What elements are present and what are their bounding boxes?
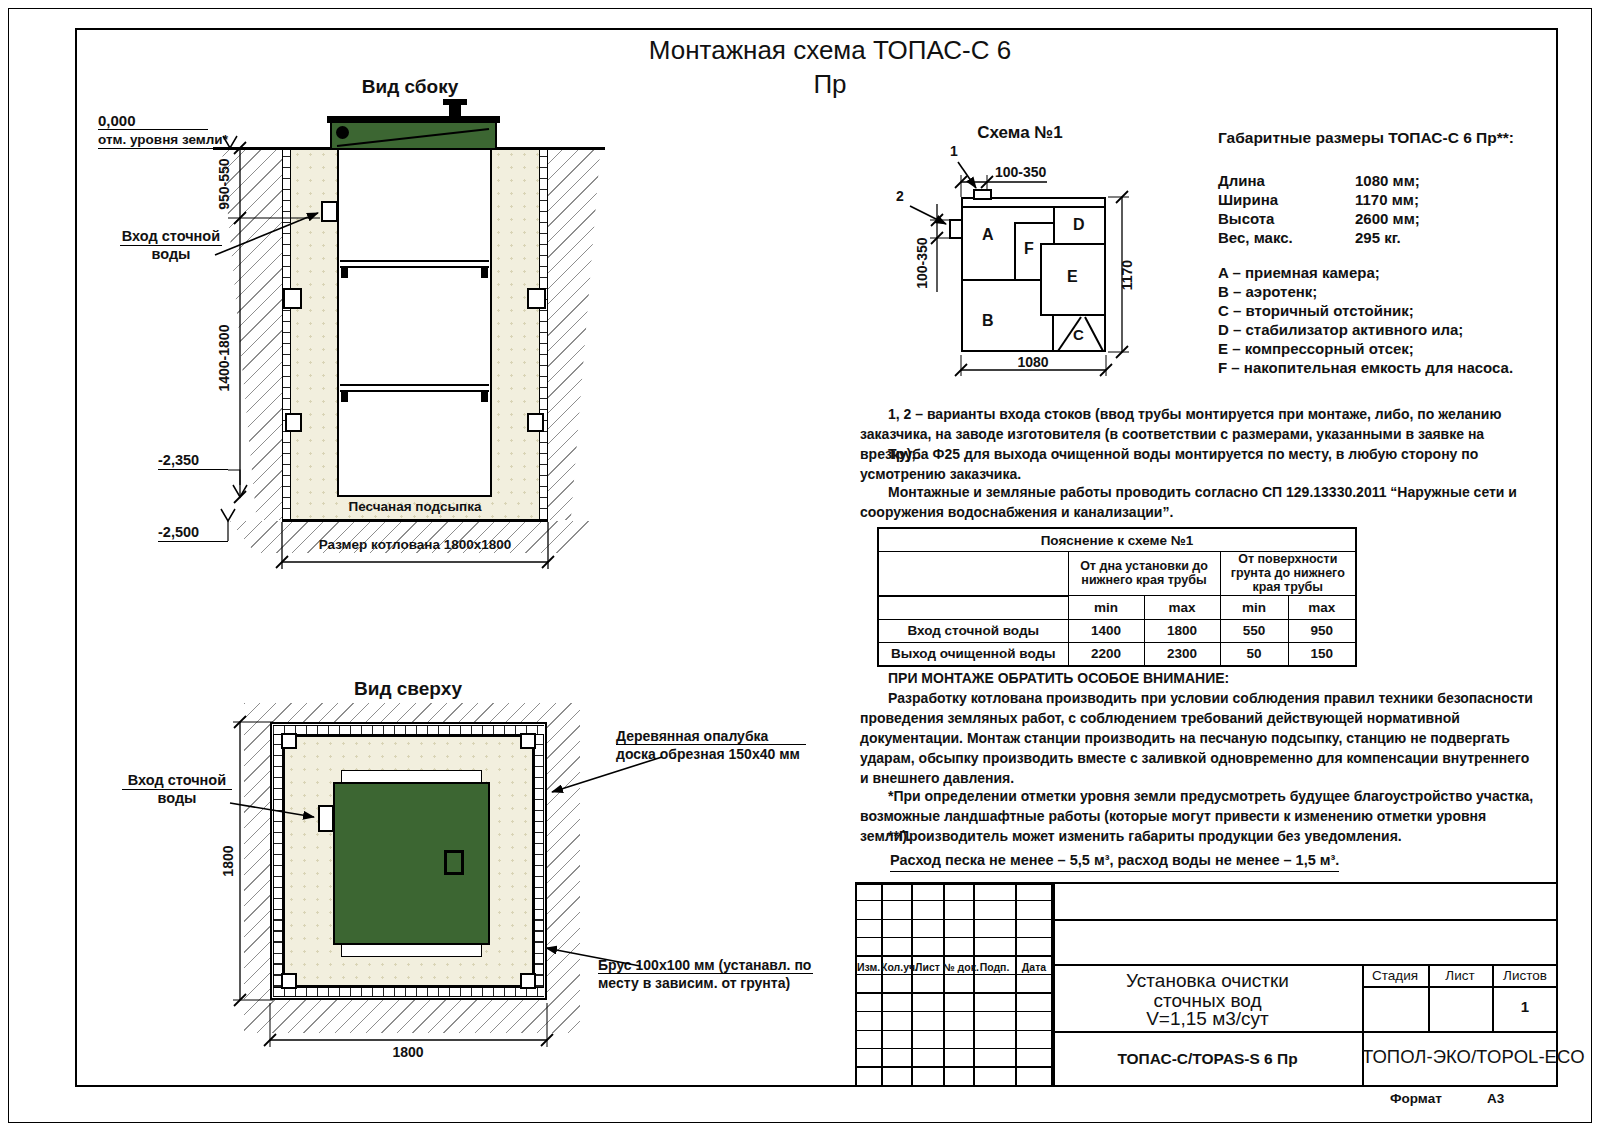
schema-bc-divider	[1052, 315, 1054, 352]
explanation-table: Пояснение к схеме №1 От дна установки до…	[877, 527, 1357, 667]
inlet-label-top-1: Вход сточной	[122, 772, 232, 790]
schema-label-e: E	[1067, 268, 1078, 286]
spec-label: Высота	[1218, 210, 1274, 227]
pit-bottom-line	[282, 519, 548, 522]
lid-latch-circle	[336, 126, 349, 139]
corner-beam	[520, 973, 536, 989]
revision-grid-line	[1015, 883, 1017, 1087]
tank-divider-tab	[481, 268, 488, 278]
table-cell: 1800	[1144, 619, 1220, 642]
doc-name-line1: Установка очистки	[1053, 970, 1362, 992]
table-row: Вход сточной воды 1400 1800 550 950	[878, 619, 1356, 642]
formwork-label-1: Деревянная опалубка	[616, 728, 806, 745]
rev-col-data: Дата	[1015, 961, 1053, 973]
formwork-board-right	[539, 148, 548, 520]
schema-label-f: F	[1024, 240, 1034, 258]
vent-cap	[443, 99, 467, 105]
dim-topview-horizontal: 1800	[358, 1044, 458, 1060]
sheets-value: 1	[1492, 998, 1558, 1015]
table-cell: 2300	[1144, 642, 1220, 666]
schema-dim-width: 1080	[983, 354, 1083, 370]
rev-col-izm: Изм.	[855, 961, 882, 973]
table-cell: 950	[1288, 619, 1356, 642]
ground-level-label: отм. уровня земли*	[98, 132, 228, 149]
table-sub-min: min	[1068, 596, 1144, 620]
rev-col-kol: Кол.уч.	[881, 961, 912, 973]
inlet-pipe-stub-side	[321, 201, 338, 222]
vent-pipe	[449, 103, 461, 117]
elevation-zero-label: 0,000	[98, 112, 208, 130]
table-row-name: Вход сточной воды	[878, 619, 1068, 642]
tank-divider-tab	[481, 392, 488, 402]
lid-hatch-opening	[444, 850, 464, 875]
table-row-name: Выход очищенной воды	[878, 642, 1068, 666]
spec-label: Ширина	[1218, 191, 1278, 208]
legend-line: E – компрессорный отсек;	[1218, 340, 1414, 357]
wall-penetration	[285, 413, 302, 432]
legend-line: D – стабилизатор активного ила;	[1218, 321, 1463, 338]
titleblock-line	[1053, 919, 1558, 921]
schema-dim-height: 1170	[1119, 240, 1135, 310]
consumption-note: Расход песка не менее – 5,5 м³, расход в…	[890, 852, 1339, 872]
note-outlet-pipe: Труба Ф25 для выхода очищенной воды монт…	[860, 444, 1532, 484]
schema-label-c: C	[1073, 326, 1084, 343]
tank-divider-tab	[341, 268, 348, 278]
formwork-ticks-bottom	[273, 987, 544, 997]
tank-divider-line	[340, 390, 489, 392]
formwork-ticks-right	[534, 735, 544, 987]
tank-divider-line	[340, 260, 489, 262]
schema-label-d: D	[1073, 216, 1085, 234]
revision-grid	[855, 883, 1053, 1087]
schema-label-a: A	[982, 226, 994, 244]
sand-backfill-right	[492, 148, 539, 497]
drawing-subtitle: Пр	[580, 70, 1080, 100]
table-group-2: От поверхности грунта до нижнего края тр…	[1220, 552, 1356, 596]
format-label: Формат	[1390, 1091, 1442, 1107]
dim-depth-main: 1400-1800	[216, 318, 232, 398]
legend-line: C – вторичный отстойник;	[1218, 302, 1414, 319]
inlet-pipe-stub-topview	[318, 805, 334, 832]
revision-grid-line	[881, 883, 883, 1087]
schema-inlet-2	[949, 219, 963, 239]
specs-title: Габаритные размеры ТОПАС-С 6 Пр**:	[1218, 129, 1514, 147]
table-group-1: От дна установки до нижнего края трубы	[1068, 552, 1220, 596]
sand-bed-label: Песчаная подсыпка	[330, 499, 500, 515]
drawing-sheet: Монтажная схема ТОПАС-С 6 Пр Вид сбоку 0…	[0, 0, 1600, 1131]
col-sheets: Листов	[1492, 968, 1558, 984]
titleblock-line	[1053, 964, 1558, 967]
table-cell: 150	[1288, 642, 1356, 666]
top-view-title: Вид сверху	[308, 678, 508, 700]
revision-grid-line	[973, 883, 975, 1087]
tank-rim-bottom	[341, 943, 482, 957]
spec-label: Вес, макс.	[1218, 229, 1293, 246]
table-cell: 50	[1220, 642, 1288, 666]
schema-ab-divider	[961, 279, 1040, 281]
tank-lid-topview	[333, 782, 490, 945]
revision-grid-line	[911, 883, 913, 1087]
revision-grid-line	[943, 883, 945, 1087]
inlet-label-top-2: воды	[122, 790, 232, 807]
spec-value: 1080 мм;	[1355, 172, 1420, 189]
formwork-board-left	[282, 148, 291, 520]
table-cell: 1400	[1068, 619, 1144, 642]
legend-line: B – аэротенк;	[1218, 283, 1317, 300]
beam-label-2: месту в зависим. от грунта)	[598, 975, 813, 991]
tank-lid-green	[330, 121, 497, 150]
table-row: Выход очищенной воды 2200 2300 50 150	[878, 642, 1356, 666]
table-cell: 550	[1220, 619, 1288, 642]
footnote-manufacturer: **Производитель может изменить габариты …	[860, 826, 1540, 846]
warning-title: ПРИ МОНТАЖЕ ОБРАТИТЬ ОСОБОЕ ВНИМАНИЕ:	[860, 668, 1536, 688]
legend-line: A – приемная камера;	[1218, 264, 1380, 281]
formwork-ticks-top	[273, 725, 544, 735]
titleblock-line	[855, 882, 1558, 885]
corner-beam	[281, 973, 297, 989]
schema-dim-top: 100-350	[995, 164, 1046, 180]
rev-col-list: Лист	[911, 961, 944, 973]
schema-marker-1: 1	[950, 143, 958, 159]
company-name: ТОПОЛ-ЭКО/TOPOL-ECO	[1362, 1046, 1558, 1067]
tank-divider-tab	[341, 392, 348, 402]
col-stage: Стадия	[1362, 968, 1428, 984]
elevation-tank-bottom: -2,350	[158, 452, 228, 470]
formwork-ticks-left	[273, 735, 283, 987]
beam-label-1: Брус 100х100 мм (устанавл. по	[598, 957, 813, 974]
legend-line: F – накопительная емкость для насоса.	[1218, 359, 1513, 376]
product-designation: ТОПАС-С/TOPAS-S 6 Пр	[1053, 1050, 1362, 1068]
schema-label-b: B	[982, 312, 994, 330]
inlet-label-side-1: Вход сточной	[120, 228, 222, 246]
schema-inlet-1	[973, 189, 992, 200]
wall-penetration	[527, 413, 544, 432]
table-sub-max: max	[1144, 596, 1220, 620]
col-sheet: Лист	[1428, 968, 1492, 984]
lid-rim	[327, 116, 500, 123]
dim-topview-vertical: 1800	[220, 826, 236, 896]
tank-divider-line	[340, 384, 489, 386]
formwork-label-2: доска обрезная 150х40 мм	[616, 746, 816, 762]
wall-penetration	[527, 288, 546, 309]
corner-beam	[281, 733, 297, 749]
table-title: Пояснение к схеме №1	[878, 528, 1356, 552]
schema-title: Схема №1	[940, 123, 1100, 143]
doc-name-line3: V=1,15 м3/сут	[1053, 1008, 1362, 1030]
note-standards: Монтажные и земляные работы проводить со…	[860, 482, 1532, 522]
side-view-title: Вид сбоку	[310, 76, 510, 98]
spec-value: 295 кг.	[1355, 229, 1401, 246]
rev-col-doc: № док.	[943, 961, 974, 973]
elevation-pit-bottom: -2,500	[158, 524, 228, 542]
table-cell: 2200	[1068, 642, 1144, 666]
pit-size-label: Размер котлована 1800х1800	[300, 537, 530, 553]
spec-label: Длина	[1218, 172, 1265, 189]
inlet-label-side-2: воды	[120, 246, 222, 263]
wall-penetration	[283, 288, 302, 309]
tank-body-side	[337, 148, 492, 497]
corner-beam	[520, 733, 536, 749]
schema-dim-left: 100-350	[914, 225, 930, 301]
spec-value: 2600 мм;	[1355, 210, 1420, 227]
dim-depth-top: 950-550	[216, 149, 232, 219]
format-value: А3	[1487, 1091, 1504, 1107]
titleblock-line	[1053, 1031, 1558, 1034]
table-sub-max: max	[1288, 596, 1356, 620]
spec-value: 1170 мм;	[1355, 191, 1419, 208]
drawing-title: Монтажная схема ТОПАС-С 6	[580, 36, 1080, 66]
titleblock-line	[1362, 986, 1558, 988]
table-sub-min: min	[1220, 596, 1288, 620]
rev-col-podp: Подп.	[973, 961, 1016, 973]
schema-marker-2: 2	[896, 188, 904, 204]
warning-body: Разработку котлована производить при усл…	[860, 688, 1536, 788]
tank-divider-line	[340, 266, 489, 268]
